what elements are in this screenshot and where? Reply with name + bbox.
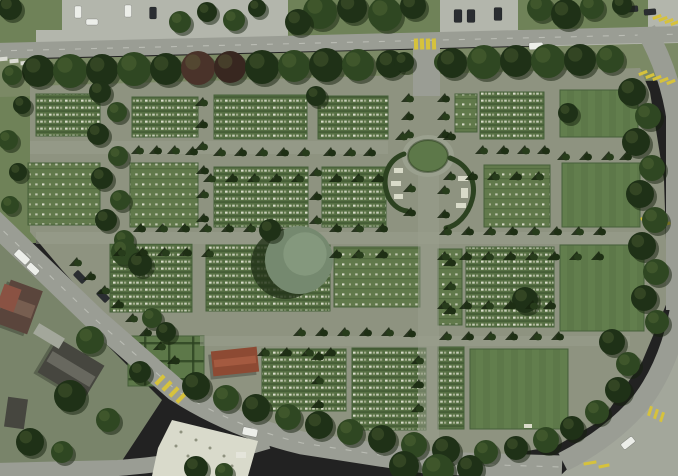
tree-highlight [471,48,486,63]
tree [96,408,120,432]
car [467,10,475,23]
small-tree [542,148,550,155]
small-tree [144,330,152,337]
tree-highlight [217,465,225,473]
small-tree [510,334,518,341]
small-tree [444,334,452,341]
tree [337,419,363,445]
tree [616,352,640,376]
plot-n-r1 [480,92,544,139]
tree [618,78,646,106]
tree [107,102,127,122]
small-tree [624,154,632,161]
tree-highlight [642,158,654,170]
tree [9,163,27,181]
tree-highlight [393,454,407,468]
tree [22,55,54,87]
tree-highlight [200,4,209,13]
tree [95,209,117,231]
small-tree [314,170,322,177]
tree [54,380,86,412]
tree [558,103,578,123]
small-tree [448,260,456,267]
tree [1,196,19,214]
small-tree [416,382,424,389]
small-tree [342,330,350,337]
small-tree [248,226,256,233]
tree-highlight [3,198,11,206]
tree [129,361,151,383]
flowerbed [394,168,403,173]
flowerbed [391,181,401,186]
tree-highlight [535,47,550,62]
plot-s-c4a [262,349,346,411]
small-tree [334,252,342,259]
tree-highlight [250,1,258,9]
tree-highlight [187,458,198,469]
small-tree [204,226,212,233]
tree-highlight [608,380,620,392]
yellow-road-marking [420,38,424,49]
tree-highlight [563,418,574,429]
small-tree [442,188,450,195]
small-tree [154,148,162,155]
walking-path [418,168,439,440]
tree-highlight [309,414,322,427]
small-tree [530,254,538,261]
small-tree [208,176,216,183]
tree-highlight [278,407,290,419]
small-tree [160,226,168,233]
tree-highlight [145,310,154,319]
small-tree [444,229,452,236]
small-tree [492,174,500,181]
small-tree [416,406,424,413]
tree [605,377,631,403]
tree-highlight [288,12,300,24]
small-tree [364,330,372,337]
tree-highlight [619,354,630,365]
tree [197,2,217,22]
small-tree [102,288,110,295]
tree [156,322,176,342]
small-tree [448,308,456,315]
small-tree [598,229,606,236]
tree-highlight [309,88,318,97]
yellow-road-marking [414,38,418,49]
small-tree [480,148,488,155]
tree-highlight [555,2,569,16]
tree-highlight [648,312,659,323]
tree-highlight [11,165,19,173]
tree-highlight [436,439,449,452]
tree-highlight [404,435,416,447]
small-tree [406,96,414,103]
tree [87,123,109,145]
tree-highlight [313,51,328,66]
gravel-patch [236,452,246,458]
small-tree [574,254,582,261]
tree-highlight [58,383,72,397]
tree [643,259,669,285]
light-road-marking [9,59,18,64]
plot-n-r0 [455,94,477,132]
tree [596,45,624,73]
tree-highlight [426,457,440,471]
gravel-speckle [187,455,190,458]
small-tree [316,378,324,385]
tree-highlight [477,442,488,453]
small-tree [226,226,234,233]
tree [306,86,326,106]
tree [285,9,311,35]
tree-highlight [515,290,527,302]
small-tree [334,176,342,183]
gravel-speckle [209,447,212,450]
tree [150,53,182,85]
tree [214,51,246,83]
tree-highlight [632,235,645,248]
tree-highlight [626,131,639,144]
tree-highlight [172,13,182,23]
small-tree [488,229,496,236]
tree [305,411,333,439]
gravel-speckle [180,431,183,434]
tree [51,441,73,463]
small-tree [514,174,522,181]
small-tree [510,229,518,236]
tree [213,385,239,411]
tree-highlight [630,183,643,196]
small-tree [408,331,416,338]
tree [309,48,343,82]
small-tree [218,150,226,157]
tree-highlight [132,363,142,373]
small-tree [138,226,146,233]
small-tree [442,212,450,219]
tree [182,372,210,400]
tree [564,44,596,76]
small-tree [200,100,208,107]
small-tree [281,150,289,157]
tree-highlight [159,324,168,333]
small-tree [532,229,540,236]
tree [245,50,279,84]
small-tree [116,302,124,309]
tree-highlight [1,132,10,141]
tree [368,425,396,453]
small-tree [488,334,496,341]
plot-w2b [130,163,198,227]
tree-highlight [94,169,104,179]
tree [275,404,301,430]
tree-highlight [568,47,582,61]
tree [53,54,87,88]
tree-highlight [460,458,472,470]
tree [622,128,650,156]
tree-highlight [504,48,518,62]
tree [223,9,245,31]
car [75,6,82,18]
small-tree [464,303,472,310]
aerial-photo-cemetery [0,0,678,476]
tree-highlight [216,388,228,400]
small-tree [380,226,388,233]
tree [13,96,31,114]
small-tree [140,250,148,257]
small-tree [252,176,260,183]
tree-highlight [20,431,33,444]
tree-highlight [113,192,122,201]
small-tree [508,254,516,261]
small-tree [442,114,450,121]
tree [117,52,151,86]
small-tree [376,176,384,183]
tree [89,81,111,103]
tree-highlight [372,0,387,15]
small-tree [274,176,282,183]
tree [628,232,656,260]
small-tree [88,274,96,281]
small-tree [386,330,394,337]
tree-highlight [536,430,548,442]
tree-highlight [645,210,657,222]
tree [635,103,661,129]
tree [437,48,467,78]
tree [504,436,528,460]
small-tree [320,330,328,337]
tree-highlight [249,53,264,68]
tree [626,180,654,208]
tree-highlight [602,332,614,344]
small-tree [298,330,306,337]
small-tree [501,148,509,155]
central-oval-green [408,140,448,172]
yellow-road-marking [426,38,430,49]
small-tree [118,250,126,257]
small-tree [536,174,544,181]
tree [242,394,270,422]
small-tree [182,226,190,233]
tree [500,45,532,77]
small-tree [562,154,570,161]
plot-w2a [28,163,100,225]
small-tree [406,114,414,121]
small-tree [348,150,356,157]
small-tree [508,303,516,310]
small-tree [316,402,324,409]
car [86,19,98,25]
small-tree [466,334,474,341]
small-tree [554,229,562,236]
light-road-marking [0,57,8,62]
small-tree [162,250,170,257]
gravel-speckle [223,455,226,458]
small-tree [408,210,416,217]
small-tree [356,176,364,183]
tree [16,428,44,456]
plot-n-c1 [214,95,307,139]
small-tree [400,134,408,141]
tree [631,285,657,311]
tree [181,51,215,85]
tree-highlight [646,262,658,274]
tree-highlight [57,57,72,72]
tree-highlight [15,98,23,106]
tree-highlight [380,53,393,66]
small-tree [239,150,247,157]
small-tree [534,334,542,341]
small-tree [314,194,322,201]
small-tree [408,186,416,193]
car [494,8,502,21]
tree [585,400,609,424]
small-tree [442,96,450,103]
tree-highlight [218,54,232,68]
small-tree [260,150,268,157]
tree-highlight [54,443,64,453]
plot-c2a [214,167,308,227]
tree-highlight [638,106,650,118]
plot-s-lawn [470,349,568,429]
small-tree [380,252,388,259]
tree-highlight [98,211,108,221]
car [644,8,656,15]
small-tree [201,192,209,199]
tree-highlight [154,56,168,70]
small-tree [306,350,314,357]
tree [342,49,374,81]
tree-highlight [588,402,599,413]
plot-n-c2 [318,96,388,139]
tree [108,146,128,166]
tree-highlight [92,83,102,93]
gravel-speckle [175,445,178,448]
tree-highlight [90,125,100,135]
small-tree [130,316,138,323]
small-tree [530,303,538,310]
small-tree [548,303,556,310]
small-tree [200,122,208,129]
small-tree [576,229,584,236]
small-tree [334,226,342,233]
tree [645,310,669,334]
tree-highlight [507,438,518,449]
tree-highlight [282,53,296,67]
small-tree [328,150,336,157]
tree-highlight [186,375,199,388]
small-tree [172,358,180,365]
small-tree [172,148,180,155]
small-tree [328,350,336,357]
small-tree [356,226,364,233]
tree [639,155,665,181]
small-tree [584,154,592,161]
tree [467,45,501,79]
flowerbed [524,424,532,428]
small-tree [184,250,192,257]
small-tree [262,350,270,357]
small-tree [466,229,474,236]
small-tree [316,354,324,361]
tree-highlight [185,54,200,69]
tree-highlight [226,11,236,21]
plot-nw-b [132,97,198,137]
tree-highlight [80,329,93,342]
small-tree [296,176,304,183]
tree-highlight [110,104,119,113]
small-tree [596,254,604,261]
tree-highlight [622,81,635,94]
satellite-map-canvas[interactable] [0,0,678,476]
car [150,7,157,19]
small-tree [74,260,82,267]
tree [278,50,310,82]
car [125,5,132,17]
tree-highlight [111,148,120,157]
tree [533,427,559,453]
tree-highlight [397,54,406,63]
tree [259,219,281,241]
small-tree [470,174,478,181]
tree-highlight [372,428,385,441]
small-tree [522,148,530,155]
tree-highlight [441,51,455,65]
small-tree [356,252,364,259]
tree-highlight [246,397,259,410]
small-tree [464,254,472,261]
gravel-speckle [195,439,198,442]
small-tree [284,350,292,357]
small-tree [486,303,494,310]
small-tree [201,216,209,223]
flowerbed [456,203,466,208]
small-tree [448,134,456,141]
tree [531,44,565,78]
tree [2,65,22,85]
tree [642,207,668,233]
small-tree [230,176,238,183]
walking-path [200,336,630,346]
small-tree [158,344,166,351]
outbuilding [4,397,28,429]
tree [560,416,584,440]
small-tree [606,154,614,161]
tree-highlight [121,55,136,70]
tree [76,326,104,354]
small-tree [302,150,310,157]
small-tree [448,174,456,181]
small-tree [552,254,560,261]
tree [110,190,130,210]
small-tree [448,284,456,291]
tree-highlight [26,58,40,72]
yellow-road-marking [432,38,436,49]
small-tree [556,334,564,341]
small-tree [200,144,208,151]
tree-highlight [634,288,646,300]
car [454,10,462,23]
tree-highlight [346,52,360,66]
conifer-highlight [283,232,326,275]
tree [91,167,113,189]
small-tree [442,254,450,261]
tree [394,52,414,72]
small-tree [314,218,322,225]
tree-highlight [131,254,142,265]
tree-highlight [99,410,110,421]
small-tree [201,168,209,175]
